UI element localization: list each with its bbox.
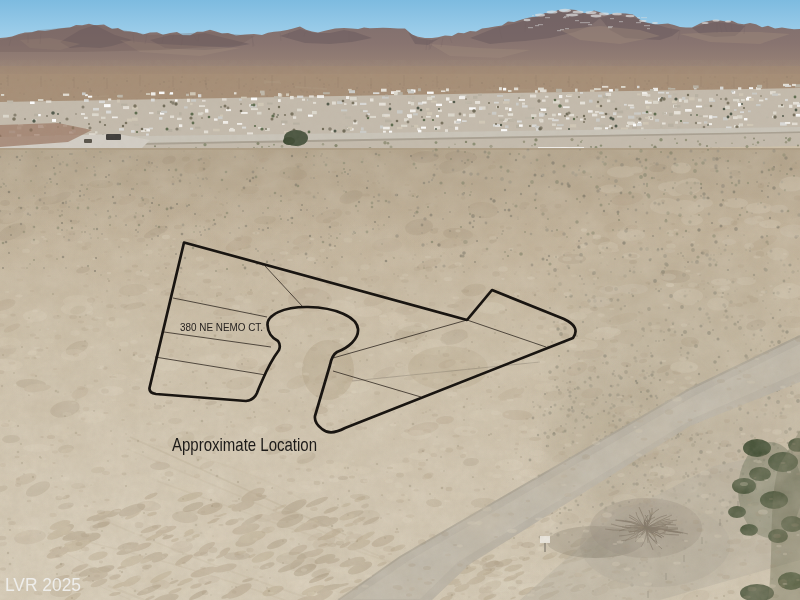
- svg-text:380 NE NEMO CT.: 380 NE NEMO CT.: [180, 321, 263, 333]
- svg-text:LVR 2025: LVR 2025: [5, 575, 81, 595]
- svg-text:Approximate Location: Approximate Location: [172, 434, 317, 455]
